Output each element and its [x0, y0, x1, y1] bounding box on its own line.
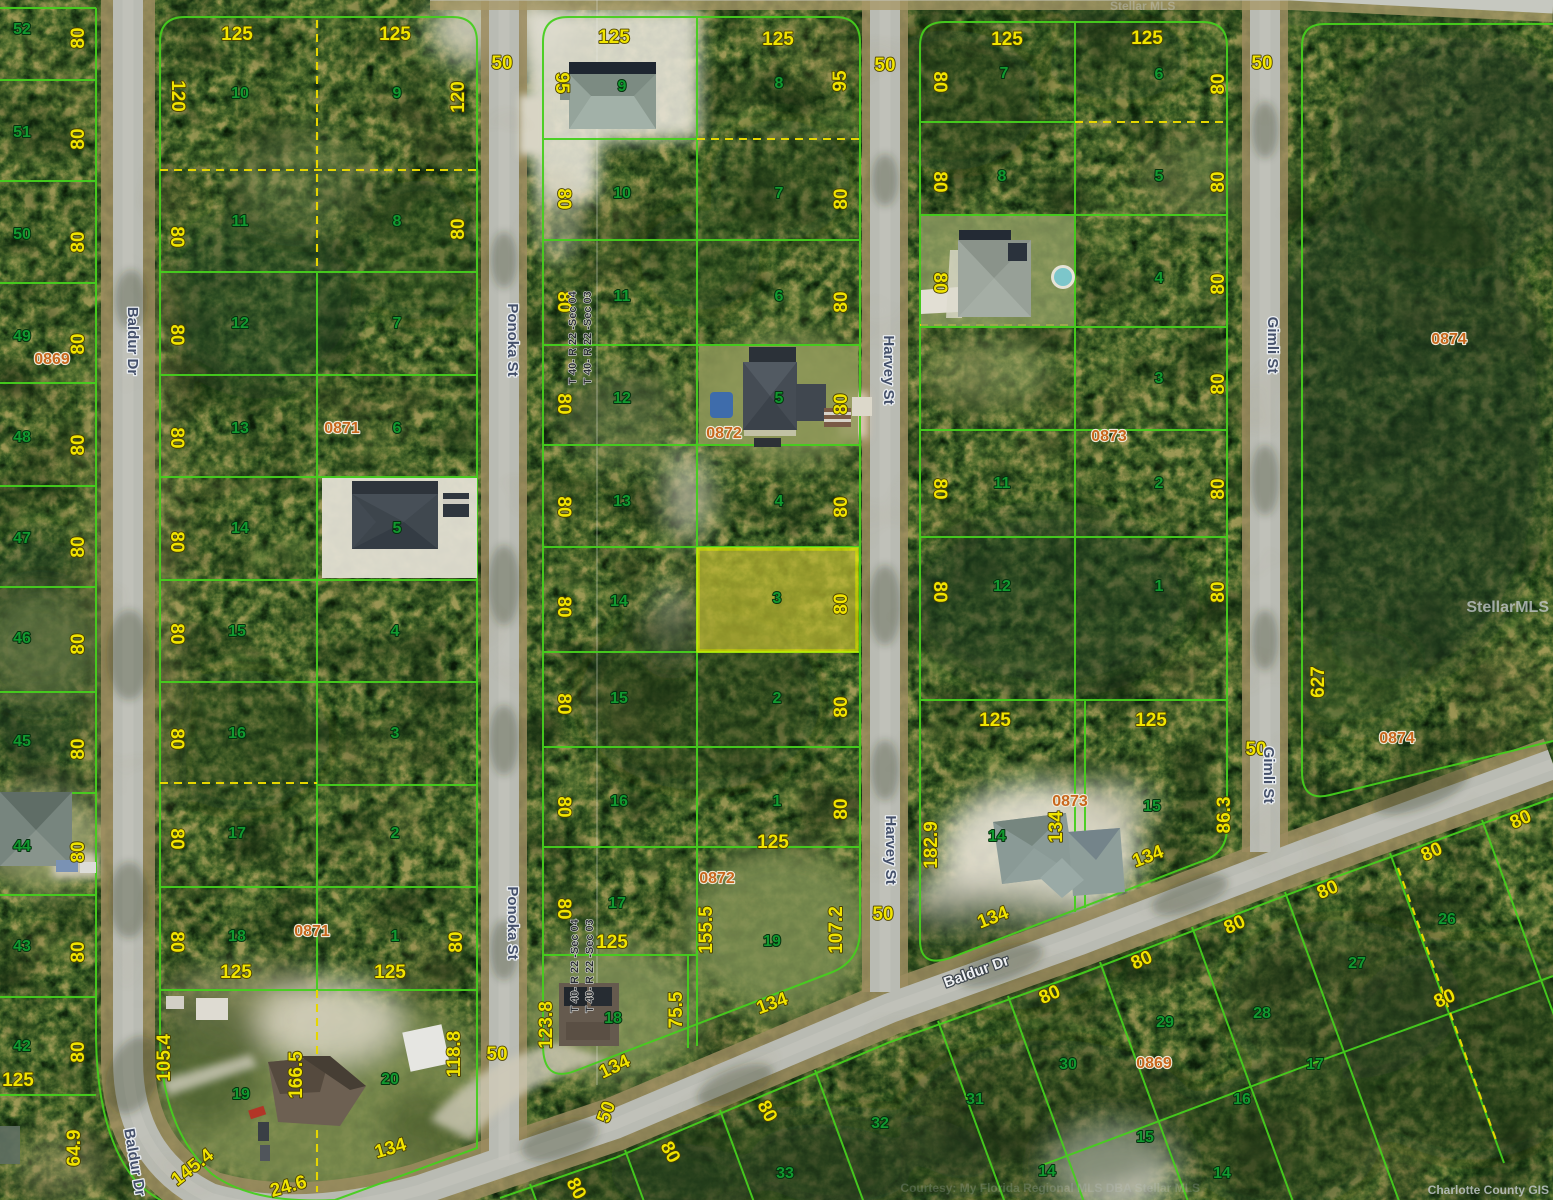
svg-text:80: 80 [68, 536, 89, 557]
svg-text:118.8: 118.8 [444, 1031, 465, 1078]
svg-text:15: 15 [1136, 1129, 1154, 1146]
svg-text:125: 125 [379, 24, 411, 45]
svg-text:1: 1 [391, 928, 400, 945]
svg-text:80: 80 [166, 427, 187, 448]
svg-text:19: 19 [763, 933, 781, 950]
svg-text:80: 80 [448, 218, 469, 239]
svg-text:1: 1 [773, 793, 782, 810]
svg-text:627: 627 [1308, 666, 1329, 698]
svg-text:80: 80 [553, 496, 574, 517]
svg-text:80: 80 [68, 738, 89, 759]
svg-text:16: 16 [610, 793, 628, 810]
svg-text:80: 80 [68, 841, 89, 862]
svg-text:80: 80 [68, 633, 89, 654]
svg-text:Harvey St: Harvey St [880, 335, 897, 404]
svg-text:80: 80 [1208, 171, 1229, 192]
svg-text:80: 80 [929, 581, 950, 602]
svg-text:80: 80 [68, 941, 89, 962]
svg-text:14: 14 [231, 520, 249, 537]
svg-text:19: 19 [232, 1086, 250, 1103]
svg-text:134: 134 [1046, 811, 1067, 843]
svg-text:12: 12 [613, 390, 631, 407]
svg-text:32: 32 [871, 1115, 889, 1132]
svg-text:46: 46 [13, 630, 31, 647]
svg-text:6: 6 [393, 420, 402, 437]
svg-text:44: 44 [13, 838, 31, 855]
svg-text:33: 33 [776, 1165, 794, 1182]
svg-text:125: 125 [598, 27, 630, 48]
svg-text:80: 80 [68, 27, 89, 48]
svg-text:166.5: 166.5 [286, 1051, 307, 1099]
svg-text:Baldur Dr: Baldur Dr [124, 307, 141, 376]
svg-text:7: 7 [775, 185, 784, 202]
svg-text:80: 80 [1208, 581, 1229, 602]
svg-text:13: 13 [613, 493, 631, 510]
svg-text:9: 9 [618, 78, 627, 95]
svg-text:0869: 0869 [1136, 1055, 1172, 1072]
svg-text:30: 30 [1059, 1056, 1077, 1073]
svg-text:0874: 0874 [1379, 730, 1415, 747]
svg-text:80: 80 [1208, 478, 1229, 499]
svg-text:80: 80 [553, 898, 574, 919]
svg-text:50: 50 [874, 55, 895, 76]
svg-text:0872: 0872 [699, 870, 735, 887]
svg-text:50: 50 [872, 904, 893, 925]
svg-text:42: 42 [13, 1038, 31, 1055]
svg-text:80: 80 [553, 693, 574, 714]
svg-text:Gimli St: Gimli St [1260, 747, 1277, 804]
svg-text:6: 6 [775, 288, 784, 305]
svg-text:80: 80 [929, 71, 950, 92]
svg-text:125: 125 [221, 24, 253, 45]
svg-text:11: 11 [994, 475, 1011, 492]
svg-text:80: 80 [831, 291, 852, 312]
svg-text:50: 50 [486, 1044, 507, 1065]
svg-text:29: 29 [1156, 1014, 1174, 1031]
svg-text:125: 125 [2, 1070, 34, 1091]
svg-text:16: 16 [1233, 1091, 1251, 1108]
svg-text:7: 7 [1000, 65, 1009, 82]
svg-text:80: 80 [166, 226, 187, 247]
svg-text:80: 80 [166, 828, 187, 849]
svg-text:14: 14 [1213, 1165, 1231, 1182]
svg-text:95: 95 [830, 70, 851, 92]
svg-text:20: 20 [381, 1071, 399, 1088]
svg-text:125: 125 [1131, 28, 1163, 49]
svg-text:11: 11 [614, 288, 631, 305]
svg-text:80: 80 [553, 188, 574, 209]
svg-text:125: 125 [596, 932, 628, 953]
svg-text:80: 80 [831, 496, 852, 517]
svg-text:5: 5 [775, 390, 784, 407]
svg-text:95: 95 [551, 72, 572, 94]
svg-text:80: 80 [68, 434, 89, 455]
svg-text:0872: 0872 [706, 425, 742, 442]
svg-text:4: 4 [775, 493, 784, 510]
svg-text:2: 2 [391, 825, 400, 842]
svg-text:Gimli St: Gimli St [1264, 317, 1281, 374]
svg-text:0873: 0873 [1052, 793, 1088, 810]
svg-text:43: 43 [13, 938, 31, 955]
svg-text:5: 5 [1155, 168, 1164, 185]
svg-text:105.4: 105.4 [154, 1034, 175, 1082]
svg-text:155.5: 155.5 [696, 906, 717, 954]
svg-text:45: 45 [13, 733, 31, 750]
svg-text:StellarMLS: StellarMLS [1466, 599, 1549, 616]
svg-text:80: 80 [1208, 373, 1229, 394]
svg-text:T 40- R 22 -Sec 04: T 40- R 22 -Sec 04 [569, 918, 581, 1012]
svg-text:18: 18 [604, 1010, 622, 1027]
svg-text:51: 51 [13, 124, 31, 141]
svg-text:7: 7 [393, 315, 402, 332]
svg-text:80: 80 [831, 188, 852, 209]
svg-text:Stellar MLS: Stellar MLS [1110, 0, 1175, 13]
svg-text:125: 125 [762, 29, 794, 50]
svg-text:11: 11 [232, 213, 249, 230]
svg-text:80: 80 [166, 728, 187, 749]
svg-text:T 40- R 22 -Sec 04: T 40- R 22 -Sec 04 [567, 290, 579, 384]
svg-text:3: 3 [773, 590, 782, 607]
svg-text:Harvey St: Harvey St [882, 815, 899, 884]
svg-text:80: 80 [831, 593, 852, 614]
svg-text:2: 2 [1155, 475, 1164, 492]
svg-text:80: 80 [929, 171, 950, 192]
svg-text:80: 80 [553, 596, 574, 617]
svg-text:80: 80 [166, 931, 187, 952]
svg-text:80: 80 [929, 478, 950, 499]
svg-text:80: 80 [1208, 273, 1229, 294]
svg-text:26: 26 [1438, 911, 1456, 928]
svg-text:125: 125 [991, 29, 1023, 50]
svg-text:1: 1 [1155, 578, 1164, 595]
svg-text:125: 125 [757, 832, 789, 853]
svg-text:12: 12 [231, 315, 249, 332]
svg-text:80: 80 [68, 231, 89, 252]
svg-text:16: 16 [228, 725, 246, 742]
svg-text:0869: 0869 [34, 351, 70, 368]
svg-text:80: 80 [553, 796, 574, 817]
svg-text:49: 49 [13, 328, 31, 345]
svg-text:17: 17 [1306, 1056, 1324, 1073]
svg-text:47: 47 [13, 530, 31, 547]
svg-text:125: 125 [220, 962, 252, 983]
svg-text:4: 4 [1155, 270, 1164, 287]
svg-text:17: 17 [608, 895, 626, 912]
svg-text:64.9: 64.9 [64, 1130, 85, 1167]
svg-text:80: 80 [68, 333, 89, 354]
svg-text:14: 14 [1038, 1163, 1056, 1180]
svg-text:31: 31 [966, 1091, 984, 1108]
svg-text:125: 125 [1135, 710, 1167, 731]
svg-text:0873: 0873 [1091, 428, 1127, 445]
svg-text:80: 80 [68, 1041, 89, 1062]
svg-text:17: 17 [228, 825, 246, 842]
svg-text:75.5: 75.5 [666, 991, 687, 1028]
svg-text:10: 10 [231, 85, 249, 102]
svg-text:9: 9 [393, 85, 402, 102]
svg-text:125: 125 [374, 962, 406, 983]
svg-text:12: 12 [993, 578, 1011, 595]
svg-text:14: 14 [988, 828, 1006, 845]
svg-text:120: 120 [167, 80, 188, 112]
svg-text:27: 27 [1348, 955, 1366, 972]
svg-text:80: 80 [831, 798, 852, 819]
svg-text:2: 2 [773, 690, 782, 707]
svg-text:48: 48 [13, 429, 31, 446]
svg-text:50: 50 [13, 226, 31, 243]
svg-text:50: 50 [1251, 53, 1272, 74]
svg-text:123.8: 123.8 [536, 1001, 557, 1049]
svg-text:0874: 0874 [1431, 331, 1467, 348]
svg-text:8: 8 [775, 75, 784, 92]
svg-text:18: 18 [228, 928, 246, 945]
svg-text:T 40- R 22 -Sec 03: T 40- R 22 -Sec 03 [582, 291, 594, 385]
svg-text:Ponoka St: Ponoka St [504, 303, 521, 376]
svg-text:4: 4 [391, 623, 400, 640]
svg-text:182.9: 182.9 [921, 821, 942, 869]
svg-text:Charlotte County GIS: Charlotte County GIS [1428, 1183, 1549, 1197]
svg-text:15: 15 [1143, 798, 1161, 815]
svg-text:13: 13 [231, 420, 249, 437]
svg-text:8: 8 [998, 168, 1007, 185]
svg-text:Courtesy: My Florida Regional: Courtesy: My Florida Regional MLS DBA St… [900, 1181, 1200, 1195]
svg-text:T 40- R 22 -Sec 03: T 40- R 22 -Sec 03 [584, 919, 596, 1013]
svg-text:0871: 0871 [294, 923, 330, 940]
svg-text:6: 6 [1155, 66, 1164, 83]
svg-text:80: 80 [446, 931, 467, 952]
svg-text:15: 15 [228, 623, 246, 640]
svg-text:80: 80 [929, 272, 950, 293]
svg-text:28: 28 [1253, 1005, 1271, 1022]
svg-text:80: 80 [68, 128, 89, 149]
svg-text:50: 50 [491, 53, 512, 74]
svg-text:Ponoka St: Ponoka St [504, 886, 521, 959]
svg-text:80: 80 [1208, 73, 1229, 94]
svg-text:80: 80 [166, 324, 187, 345]
svg-text:52: 52 [13, 21, 31, 38]
svg-text:8: 8 [393, 213, 402, 230]
svg-text:125: 125 [979, 710, 1011, 731]
svg-text:3: 3 [391, 725, 400, 742]
svg-text:14: 14 [610, 593, 628, 610]
svg-text:80: 80 [831, 696, 852, 717]
svg-text:86.3: 86.3 [1214, 797, 1235, 834]
svg-text:10: 10 [613, 185, 631, 202]
svg-text:80: 80 [166, 531, 187, 552]
svg-text:3: 3 [1155, 370, 1164, 387]
svg-text:80: 80 [831, 393, 852, 414]
svg-text:0871: 0871 [324, 420, 360, 437]
svg-text:80: 80 [553, 393, 574, 414]
svg-text:120: 120 [448, 81, 469, 113]
svg-text:5: 5 [393, 520, 402, 537]
svg-text:80: 80 [166, 623, 187, 644]
svg-text:107.2: 107.2 [826, 906, 847, 954]
svg-text:15: 15 [610, 690, 628, 707]
